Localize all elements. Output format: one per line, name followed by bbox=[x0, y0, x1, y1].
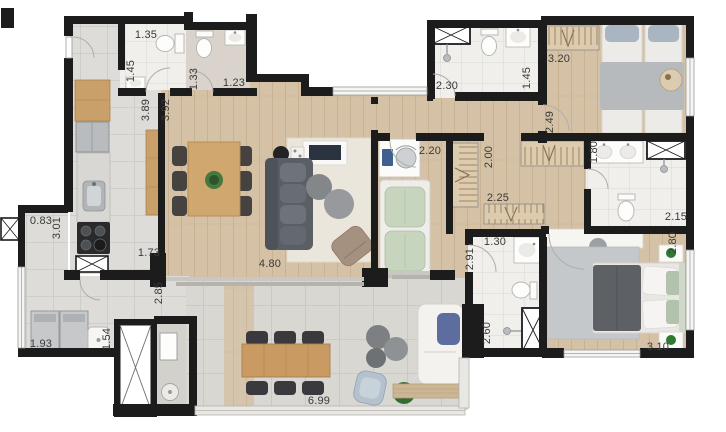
dim-laundry-width: 1.93 bbox=[30, 338, 52, 350]
sliding-door bbox=[388, 271, 430, 279]
floor-plan-svg: 1.35 1.45 1.33 1.23 3.89 3.92 2.30 1.45 … bbox=[0, 0, 726, 432]
outdoor-chair-icon bbox=[302, 381, 324, 395]
pouf-icon bbox=[384, 337, 408, 361]
wardrobe-icon bbox=[484, 204, 544, 224]
sink-icon bbox=[514, 237, 540, 263]
door-leaf bbox=[160, 333, 177, 360]
dim-master-bedroom-width: 3.10 bbox=[647, 341, 669, 353]
dim-lavatory-width: 1.23 bbox=[223, 77, 245, 89]
dim-lavatory-depth: 1.33 bbox=[188, 68, 200, 90]
fridge-icon bbox=[76, 122, 109, 152]
dim-bathroom-1-depth: 1.45 bbox=[125, 60, 137, 82]
pouf-icon bbox=[366, 348, 386, 368]
dim-master-bath-depth: 1.80 bbox=[588, 141, 600, 163]
toilet-icon bbox=[196, 31, 213, 58]
wash-basin-icon bbox=[162, 384, 179, 401]
faucet-icon bbox=[92, 182, 96, 186]
ac-unit-icon bbox=[1, 218, 19, 240]
dim-bathroom-3-depth: 2.60 bbox=[481, 322, 493, 344]
dim-hall-closet-width: 2.25 bbox=[487, 192, 509, 204]
window bbox=[564, 350, 640, 357]
dim-master-bedroom-depth: 2.80 bbox=[667, 232, 679, 254]
outdoor-chair-icon bbox=[246, 331, 268, 345]
dim-office-width: 2.20 bbox=[419, 145, 441, 157]
dim-living-width: 4.80 bbox=[259, 258, 281, 270]
master-bedroom bbox=[543, 229, 685, 349]
chaise-lounge-icon bbox=[418, 304, 463, 384]
pouf-icon bbox=[324, 189, 354, 219]
dim-bathroom-3-width: 1.30 bbox=[484, 236, 506, 248]
outdoor-chair-icon bbox=[274, 331, 296, 345]
dim-terrace-width: 6.99 bbox=[308, 395, 330, 407]
dim-bathroom-2-depth: 1.45 bbox=[521, 67, 533, 89]
dim-bathroom-1-width: 1.35 bbox=[135, 29, 157, 41]
sofa-icon bbox=[265, 158, 313, 250]
sideboard-icon bbox=[146, 130, 160, 215]
dining-chair-icon bbox=[172, 196, 187, 216]
kitchen-cabinet-icon bbox=[75, 80, 110, 121]
window bbox=[18, 267, 25, 348]
dim-entry-gallery-length: 3.89 bbox=[140, 99, 152, 121]
dining-area bbox=[172, 142, 252, 216]
elevator-shaft-icon bbox=[114, 319, 157, 417]
window bbox=[686, 250, 694, 330]
dim-service-balcony-width: 0.83 bbox=[30, 215, 52, 227]
living-room bbox=[265, 138, 375, 269]
shower-shaft-icon bbox=[432, 26, 470, 44]
wardrobe-icon bbox=[521, 141, 584, 166]
toilet-icon bbox=[156, 34, 184, 53]
dim-bedroom-2-width: 3.20 bbox=[548, 53, 570, 65]
toilet-icon bbox=[512, 282, 537, 299]
dim-service-balcony-depth: 3.01 bbox=[51, 217, 63, 239]
dim-bathroom-2-width: 2.30 bbox=[436, 80, 458, 92]
toilet-icon bbox=[618, 194, 635, 221]
outdoor-chair-icon bbox=[302, 331, 324, 345]
dim-master-bath-width: 2.15 bbox=[665, 211, 687, 223]
kitchen-base-cabinet-icon bbox=[76, 256, 108, 272]
dim-living-length: 3.92 bbox=[160, 99, 172, 121]
wardrobe-icon bbox=[543, 26, 599, 50]
window bbox=[333, 87, 427, 95]
dining-chair-icon bbox=[172, 171, 187, 191]
dim-kitchen-opening-width: 1.73 bbox=[138, 247, 160, 259]
dim-bedroom-2-depth: 2.49 bbox=[544, 111, 556, 133]
shower-shaft-icon bbox=[647, 141, 685, 159]
outdoor-chair-icon bbox=[274, 381, 296, 395]
door-leaf bbox=[66, 37, 72, 58]
dim-hall-closet-depth: 2.00 bbox=[483, 146, 495, 168]
window bbox=[686, 58, 694, 116]
laptop-icon bbox=[382, 149, 393, 166]
dining-chair-icon bbox=[172, 146, 187, 166]
bedroom-2 bbox=[600, 21, 684, 133]
toilet-icon bbox=[481, 29, 498, 56]
outdoor-chair-icon bbox=[246, 381, 268, 395]
nightstand-icon bbox=[660, 69, 682, 91]
wardrobe-icon bbox=[450, 143, 478, 207]
floor-plan-canvas: 1.35 1.45 1.33 1.23 3.89 3.92 2.30 1.45 … bbox=[0, 0, 726, 432]
dim-office-depth: 2.91 bbox=[464, 248, 476, 270]
double-bed-icon bbox=[593, 263, 685, 333]
daybed-icon bbox=[380, 180, 430, 274]
wall-stub bbox=[1, 8, 14, 28]
stove-icon bbox=[77, 222, 110, 254]
dim-service-passage-depth: 2.85 bbox=[153, 282, 165, 304]
bench-icon bbox=[393, 384, 459, 398]
sink-icon bbox=[506, 27, 530, 47]
dim-laundry-depth: 1.54 bbox=[101, 328, 113, 350]
tv-icon bbox=[309, 145, 341, 160]
sink-icon bbox=[225, 30, 245, 45]
